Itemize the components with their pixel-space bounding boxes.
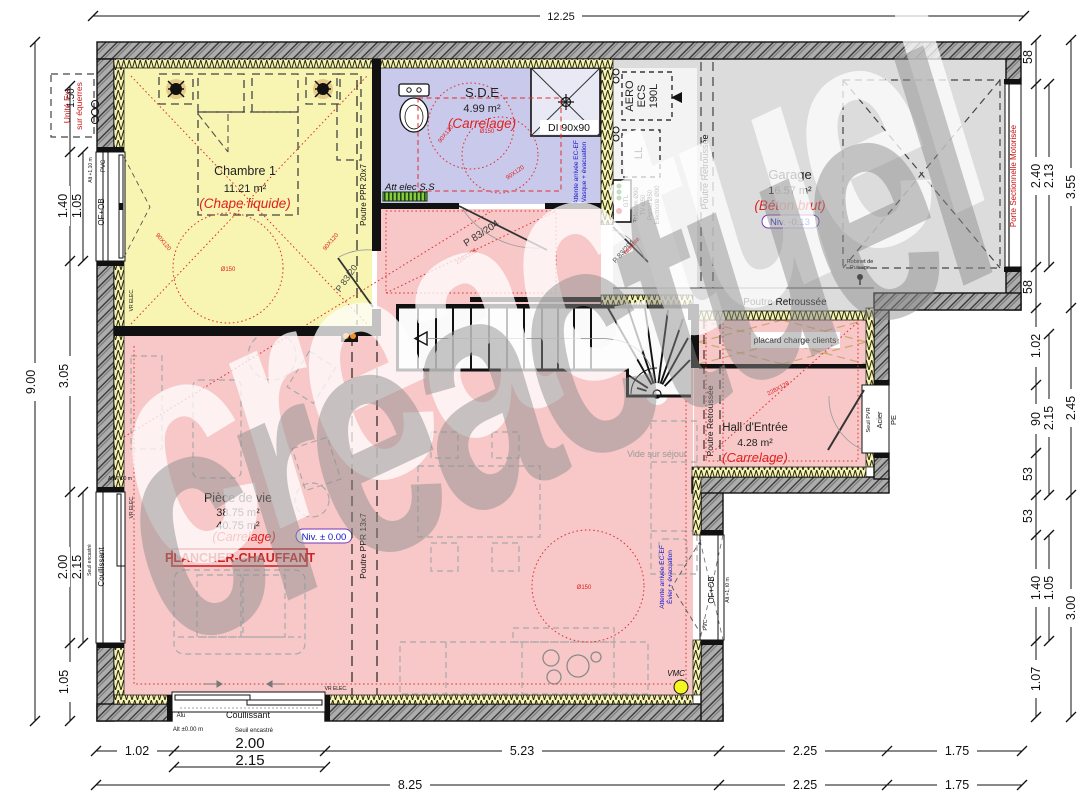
svg-text:2.13: 2.13 <box>1042 164 1056 188</box>
svg-text:2.25: 2.25 <box>793 744 817 758</box>
svg-text:Alt ±0.00 m: Alt ±0.00 m <box>173 727 203 733</box>
svg-text:1.05: 1.05 <box>1042 576 1056 600</box>
svg-text:2.40: 2.40 <box>1029 164 1043 188</box>
svg-text:Seuil PVR: Seuil PVR <box>866 407 872 432</box>
svg-text:3.00: 3.00 <box>1064 596 1078 620</box>
svg-text:VR ELEC.: VR ELEC. <box>325 686 348 692</box>
svg-text:53: 53 <box>1021 509 1035 523</box>
svg-text:1.05: 1.05 <box>57 670 71 694</box>
svg-text:Coullissant: Coullissant <box>97 547 106 587</box>
svg-text:12.25: 12.25 <box>547 11 575 23</box>
svg-text:OF+OB: OF+OB <box>707 576 716 603</box>
svg-text:VMC: VMC <box>667 669 685 678</box>
svg-text:1.75: 1.75 <box>945 744 969 758</box>
svg-text:Évier + évacuation: Évier + évacuation <box>665 550 674 604</box>
svg-text:PE: PE <box>889 415 898 425</box>
svg-text:2.15: 2.15 <box>1042 406 1056 430</box>
svg-text:1.07: 1.07 <box>1029 667 1043 691</box>
svg-text:1.40: 1.40 <box>1029 576 1043 600</box>
svg-text:2.00: 2.00 <box>56 555 70 579</box>
svg-text:Ø150: Ø150 <box>577 585 592 591</box>
svg-text:Seuil encastré: Seuil encastré <box>235 728 274 734</box>
svg-text:Attente arrivée EC-EF: Attente arrivée EC-EF <box>659 545 666 609</box>
svg-text:2.45: 2.45 <box>1064 396 1078 420</box>
svg-text:9.00: 9.00 <box>24 370 38 394</box>
svg-text:S.D.E: S.D.E <box>465 85 499 100</box>
svg-text:OF+OB: OF+OB <box>97 198 106 225</box>
svg-text:Alt +1, t0 m: Alt +1, t0 m <box>725 577 731 602</box>
svg-text:Coullissant: Coullissant <box>226 710 271 720</box>
svg-text:1.02: 1.02 <box>1029 334 1043 358</box>
svg-text:2.25: 2.25 <box>793 778 817 792</box>
svg-text:Chambre 1: Chambre 1 <box>214 164 276 178</box>
svg-text:Porte Sectionnelle Motorisée: Porte Sectionnelle Motorisée <box>1009 124 1018 227</box>
svg-text:Acier: Acier <box>875 411 884 429</box>
svg-text:1.02: 1.02 <box>125 744 149 758</box>
svg-text:58: 58 <box>1021 50 1035 64</box>
svg-text:1.50: 1.50 <box>66 88 77 108</box>
svg-text:2.00: 2.00 <box>235 735 264 752</box>
svg-text:90: 90 <box>1029 412 1043 426</box>
svg-text:3.55: 3.55 <box>1064 175 1078 199</box>
svg-text:2.15: 2.15 <box>70 555 84 579</box>
svg-text:8.25: 8.25 <box>398 778 422 792</box>
svg-text:PVC: PVC <box>101 159 107 172</box>
svg-text:1.05: 1.05 <box>70 194 84 218</box>
svg-text:11.21 m²: 11.21 m² <box>224 183 267 195</box>
svg-text:Alu: Alu <box>177 713 186 719</box>
svg-text:1.40: 1.40 <box>56 194 70 218</box>
svg-text:53: 53 <box>1021 467 1035 481</box>
svg-text:1.75: 1.75 <box>945 778 969 792</box>
svg-text:PVC: PVC <box>703 619 709 630</box>
svg-text:Seuil encastré: Seuil encastré <box>87 544 93 576</box>
svg-text:58: 58 <box>1021 280 1035 294</box>
svg-text:5.23: 5.23 <box>510 744 534 758</box>
svg-text:Alt +1,10 m: Alt +1,10 m <box>88 157 94 182</box>
svg-text:2.15: 2.15 <box>235 752 264 769</box>
